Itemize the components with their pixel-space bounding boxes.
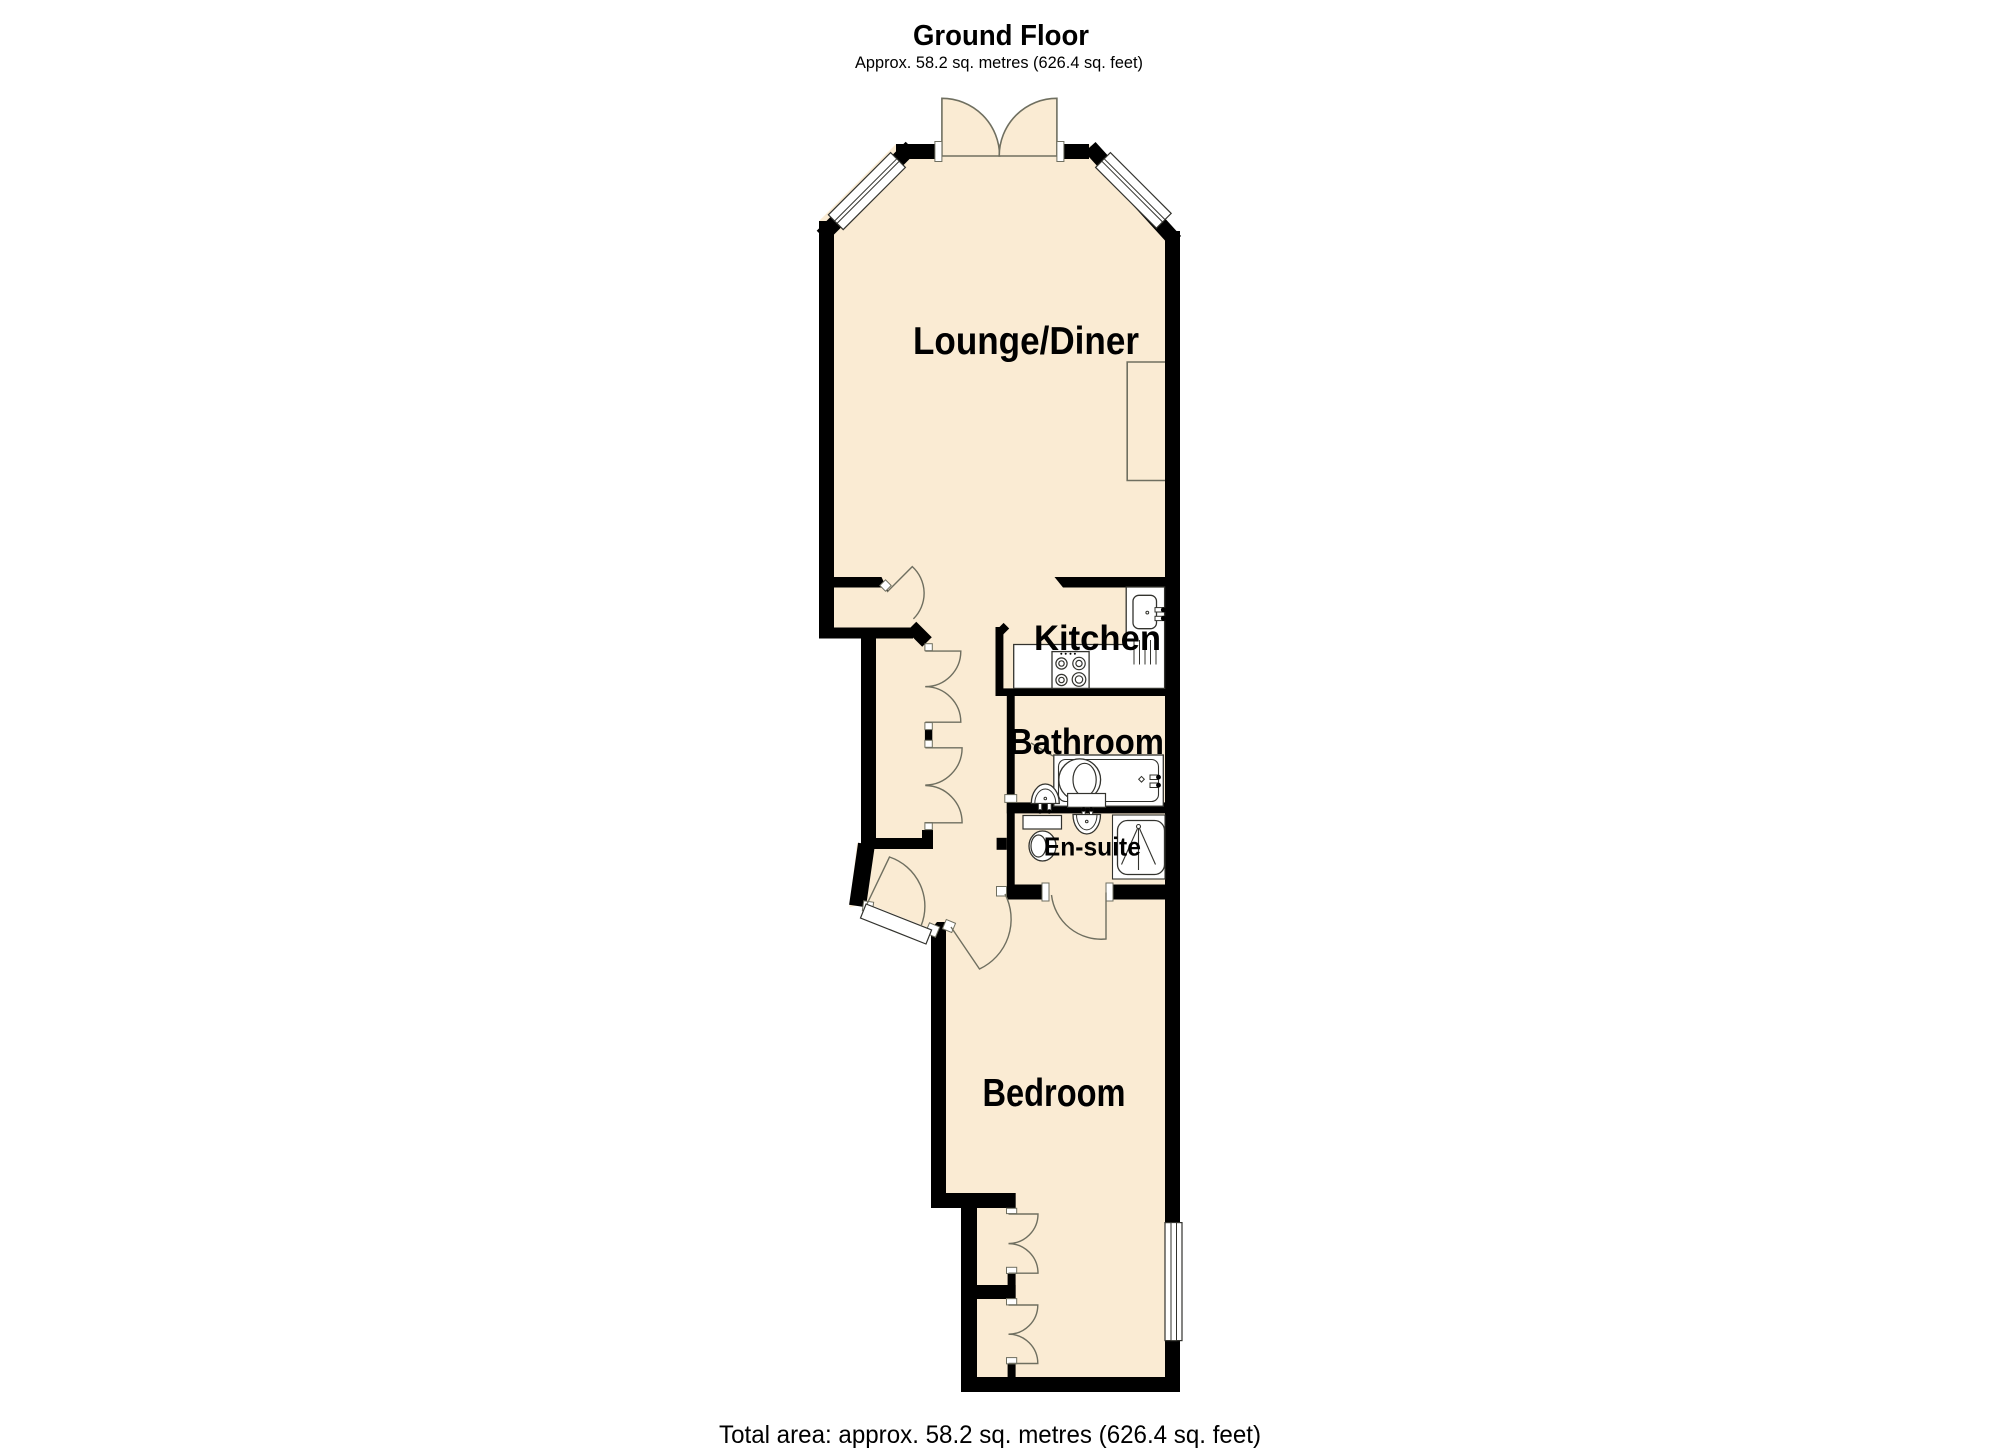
svg-text:Kitchen: Kitchen: [1034, 618, 1161, 658]
svg-text:Total area: approx. 58.2 sq. m: Total area: approx. 58.2 sq. metres (626…: [719, 1421, 1261, 1449]
svg-text:Lounge/Diner: Lounge/Diner: [913, 320, 1139, 363]
svg-text:Bedroom: Bedroom: [983, 1072, 1126, 1115]
svg-text:En-suite: En-suite: [1044, 834, 1141, 862]
svg-text:Bathroom: Bathroom: [1009, 721, 1164, 762]
svg-text:Approx. 58.2 sq. metres (626.4: Approx. 58.2 sq. metres (626.4 sq. feet): [855, 54, 1143, 72]
svg-text:Ground Floor: Ground Floor: [913, 20, 1089, 52]
